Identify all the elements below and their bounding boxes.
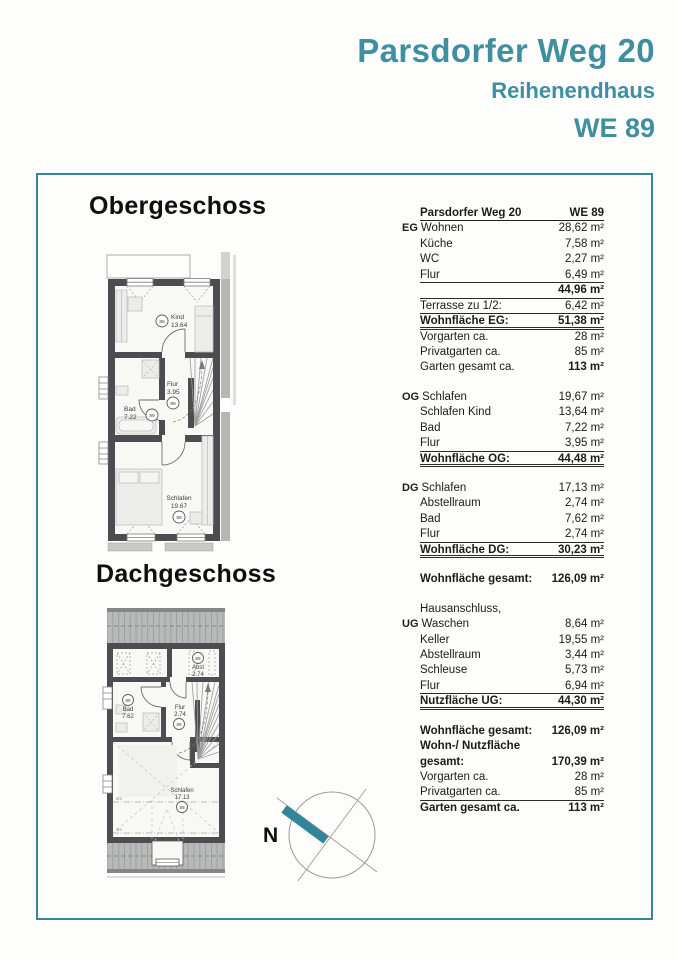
table-row: DGSchlafen17,13 m²: [402, 481, 604, 496]
row-label: Schleuse: [420, 663, 467, 678]
compass-axis: [277, 798, 377, 872]
table-row: Schlafen Kind13,64 m²: [402, 405, 604, 420]
row-label: Hausanschluss,: [420, 602, 501, 617]
row-value: 2,74 m²: [565, 527, 604, 541]
table-row: Flur6,49 m²: [402, 268, 604, 283]
row-value: 8,64 m²: [565, 617, 604, 632]
row-value: 3,44 m²: [565, 648, 604, 663]
row-value: 7,62 m²: [565, 512, 604, 527]
row-value: 6,42 m²: [565, 299, 604, 313]
row-value: 126,09 m²: [552, 572, 604, 587]
row-value: 28 m²: [575, 770, 604, 785]
row-value: 13,64 m²: [559, 405, 604, 420]
table-row: Vorgarten ca.28 m²: [402, 770, 604, 785]
row-label: Flur: [420, 527, 440, 541]
row-label: Flur: [420, 436, 440, 450]
row-label: Küche: [420, 237, 453, 252]
row-label: Privatgarten ca.: [420, 785, 501, 799]
party-wall: [221, 252, 236, 541]
table-row: Flur3,95 m²: [402, 436, 604, 451]
row-label: Flur: [420, 268, 440, 282]
row-label: Keller: [420, 633, 449, 648]
row-label: Wohnen: [421, 221, 464, 236]
row-floor-prefix: EG: [402, 221, 421, 236]
row-value: 6,94 m²: [565, 679, 604, 693]
row-label: Wohn-/ Nutzfläche: [420, 739, 520, 754]
svg-text:7.22: 7.22: [124, 414, 137, 421]
row-value: 28 m²: [575, 330, 604, 345]
row-label: Wohnfläche OG:: [420, 452, 510, 464]
row-label: Vorgarten ca.: [420, 770, 488, 785]
table-row: Wohnfläche DG:30,23 m²: [402, 543, 604, 558]
table-row: Schleuse5,73 m²: [402, 663, 604, 678]
svg-text:Flur: Flur: [167, 381, 179, 388]
room-label-abst: 89 Abst 2.74: [192, 653, 205, 679]
svg-text:89: 89: [176, 515, 182, 521]
dim-label-1m: 1m: [116, 827, 122, 832]
row-value: 19,55 m²: [559, 633, 604, 648]
row-label: Waschen: [422, 617, 470, 632]
table-row: Wohnfläche OG:44,48 m²: [402, 452, 604, 467]
table-header-row: Parsdorfer Weg 20 WE 89: [402, 206, 604, 221]
table-row: Nutzfläche UG:44,30 m²: [402, 694, 604, 709]
svg-text:89: 89: [179, 805, 185, 810]
row-value: 113 m²: [568, 360, 604, 375]
compass-axis: [298, 789, 366, 881]
svg-text:17.13: 17.13: [174, 795, 190, 801]
row-label: Wohnfläche EG:: [420, 314, 509, 326]
compass: N: [253, 778, 383, 893]
row-value: 113 m²: [568, 801, 604, 816]
row-value: 7,58 m²: [565, 237, 604, 252]
row-value: 2,27 m²: [565, 252, 604, 267]
row-label: Privatgarten ca.: [420, 345, 501, 360]
row-label: Abstellraum: [420, 496, 481, 511]
room-label-flur: Flur 2.74 89: [174, 705, 187, 730]
row-value: 28,62 m²: [559, 221, 604, 236]
table-row: Wohnfläche gesamt:126,09 m²: [402, 724, 604, 739]
svg-text:89: 89: [159, 319, 165, 325]
table-row: Flur2,74 m²: [402, 527, 604, 542]
row-value: 85 m²: [575, 785, 604, 799]
desk: [128, 297, 142, 311]
table-row: Flur6,94 m²: [402, 679, 604, 694]
og-plan-title: Obergeschoss: [89, 192, 266, 221]
table-row: Vorgarten ca.28 m²: [402, 330, 604, 345]
room-label-kind: 89 Kind 13.64: [156, 314, 188, 329]
room-label-flur: Flur 3.95 89: [167, 381, 180, 409]
row-value: 5,73 m²: [565, 663, 604, 678]
north-label: N: [263, 824, 278, 847]
unit-number: WE 89: [357, 115, 655, 142]
balcony-outline: [107, 255, 190, 278]
row-label: Wohnfläche gesamt:: [420, 724, 532, 739]
terrace-edge: [108, 543, 213, 551]
svg-text:2.74: 2.74: [192, 672, 204, 678]
row-value: 19,67 m²: [559, 390, 604, 405]
table-row: Wohnfläche EG:51,38 m²: [402, 314, 604, 329]
svg-text:19.67: 19.67: [171, 503, 188, 510]
table-row: EGWohnen28,62 m²: [402, 221, 604, 236]
table-row: OGSchlafen19,67 m²: [402, 390, 604, 405]
svg-text:Abst: Abst: [192, 665, 204, 671]
table-row: Hausanschluss,: [402, 602, 604, 617]
row-value: 85 m²: [575, 345, 604, 360]
svg-text:Schlafen: Schlafen: [170, 788, 193, 794]
row-value: 3,95 m²: [565, 436, 604, 450]
row-label: Garten gesamt ca.: [420, 360, 515, 375]
row-floor-prefix: DG: [402, 481, 422, 496]
dg-floor-plan: 2m 1m 89 Abst 2.74 89 Bad 7.62 Flur 2.74…: [95, 595, 255, 895]
table-row: Küche7,58 m²: [402, 237, 604, 252]
row-value: 2,74 m²: [565, 496, 604, 511]
row-value: 7,22 m²: [565, 421, 604, 436]
row-label: Bad: [420, 421, 440, 436]
row-label: Bad: [420, 512, 440, 527]
row-floor-prefix: UG: [402, 617, 422, 632]
svg-text:Bad: Bad: [123, 707, 134, 713]
table-row: Wohnfläche gesamt:126,09 m²: [402, 572, 604, 587]
table-header-name: Parsdorfer Weg 20: [420, 206, 521, 220]
row-value: 126,09 m²: [552, 724, 604, 739]
svg-text:89: 89: [149, 413, 155, 419]
row-label: Flur: [420, 679, 440, 693]
row-label: Wohnfläche gesamt:: [420, 572, 532, 587]
row-value: 51,38 m²: [558, 314, 604, 326]
svg-text:89: 89: [125, 698, 131, 703]
row-label: Wohnfläche DG:: [420, 543, 509, 555]
row-label: Nutzfläche UG:: [420, 694, 502, 706]
row-label: Schlafen: [422, 390, 467, 405]
table-row: Bad7,22 m²: [402, 421, 604, 436]
svg-text:Schlafen: Schlafen: [166, 495, 192, 502]
kind-bed: [195, 306, 213, 352]
row-label: Schlafen: [422, 481, 467, 496]
table-row: WC2,27 m²: [402, 252, 604, 267]
row-value: 44,30 m²: [558, 694, 604, 706]
svg-text:89: 89: [170, 401, 176, 407]
row-floor-prefix: OG: [402, 390, 422, 405]
row-value: 170,39 m²: [552, 755, 604, 770]
area-table: Parsdorfer Weg 20 WE 89 EGWohnen28,62 m²…: [402, 206, 604, 816]
room-label-bad: 89 Bad 7.62: [122, 695, 134, 721]
roof-band-bottom: [107, 841, 225, 877]
svg-text:Bad: Bad: [124, 406, 136, 413]
dim-label-2m: 2m: [116, 796, 122, 801]
row-label: Abstellraum: [420, 648, 481, 663]
row-value: 6,49 m²: [565, 268, 604, 282]
row-label: Vorgarten ca.: [420, 330, 488, 345]
row-value: 17,13 m²: [559, 481, 604, 496]
table-row: Garten gesamt ca.113 m²: [402, 801, 604, 816]
svg-text:Flur: Flur: [175, 705, 185, 711]
row-label: Schlafen Kind: [420, 405, 491, 420]
area-table-rows: EGWohnen28,62 m²Küche7,58 m²WC2,27 m²Flu…: [402, 221, 604, 816]
sink: [116, 723, 127, 732]
row-label: Garten gesamt ca.: [420, 801, 520, 816]
svg-text:89: 89: [195, 656, 201, 661]
svg-text:13.64: 13.64: [171, 322, 188, 329]
table-row: 44,96 m²: [402, 283, 604, 298]
table-row: Terrasse zu 1/2:6,42 m²: [402, 299, 604, 314]
table-row: UGWaschen8,64 m²: [402, 617, 604, 632]
svg-text:89: 89: [176, 722, 182, 727]
svg-text:Kind: Kind: [171, 314, 184, 321]
table-row: Wohn-/ Nutzfläche: [402, 739, 604, 754]
row-label: gesamt:: [420, 755, 464, 770]
row-value: 30,23 m²: [558, 543, 604, 555]
sink: [116, 386, 128, 395]
table-header-unit: WE 89: [569, 206, 604, 220]
roof-band-top: [107, 608, 225, 643]
svg-text:2.74: 2.74: [174, 712, 186, 718]
og-floor-plan: 89 Kind 13.64 Flur 3.95 89 Bad 7.22 89 S…: [95, 250, 255, 570]
table-row: Privatgarten ca.85 m²: [402, 785, 604, 800]
row-value: 44,96 m²: [558, 283, 604, 297]
table-row: Abstellraum2,74 m²: [402, 496, 604, 511]
page-subtitle: Reihenendhaus: [357, 80, 655, 102]
table-row: Keller19,55 m²: [402, 633, 604, 648]
wall-fixtures: [99, 377, 108, 464]
table-row: Privatgarten ca.85 m²: [402, 345, 604, 360]
page-title: Parsdorfer Weg 20: [357, 34, 655, 67]
table-row: Abstellraum3,44 m²: [402, 648, 604, 663]
svg-text:7.62: 7.62: [122, 714, 134, 720]
row-label: WC: [420, 252, 439, 267]
side-table: [190, 512, 202, 524]
table-row: Garten gesamt ca.113 m²: [402, 360, 604, 375]
document-header: Parsdorfer Weg 20 Reihenendhaus WE 89: [357, 34, 655, 142]
table-row: gesamt:170,39 m²: [402, 755, 604, 770]
row-label: Terrasse zu 1/2:: [420, 299, 502, 313]
row-value: 44,48 m²: [558, 452, 604, 464]
svg-text:3.95: 3.95: [167, 389, 180, 396]
table-row: Bad7,62 m²: [402, 512, 604, 527]
